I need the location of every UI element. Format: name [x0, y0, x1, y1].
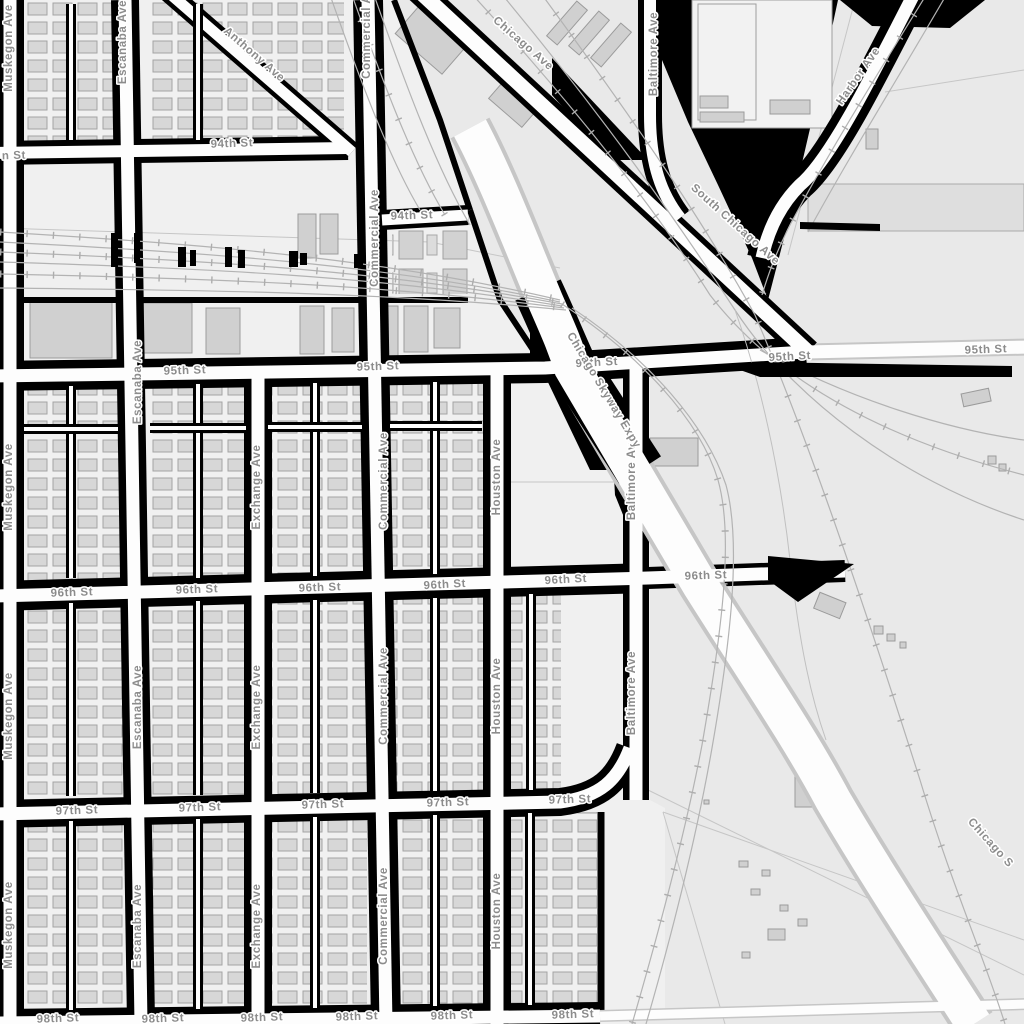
label-98th-st-2: 98th St: [141, 1012, 184, 1024]
label-houston-1: Houston Ave: [491, 439, 503, 516]
label-98th-st-5: 98th St: [430, 1009, 473, 1022]
label-exchange-1: Exchange Ave: [251, 445, 263, 530]
label-muskegon-3: Muskegon Ave: [3, 672, 15, 760]
label-98th-st-1: 98th St: [36, 1012, 79, 1024]
label-partial-st: n St: [2, 150, 27, 163]
label-escanaba-3: Escanaba Ave: [132, 665, 144, 749]
label-houston-3: Houston Ave: [491, 873, 503, 950]
label-commercial-4: Commercial Ave: [378, 647, 390, 745]
label-exchange-2: Exchange Ave: [251, 665, 263, 750]
label-95th-st-4: 95th St: [768, 350, 811, 364]
map-canvas[interactable]: 94th St 94th St n St 95th St 95th St 95t…: [0, 0, 1024, 1024]
label-95th-st-1: 95th St: [163, 364, 206, 377]
label-96th-st-3: 96th St: [298, 581, 341, 594]
label-commercial-1: Commercial Ave: [361, 0, 373, 79]
label-commercial-5: Commercial Ave: [378, 867, 390, 965]
baltimore-top-building: [692, 0, 832, 128]
label-97th-st-4: 97th St: [426, 796, 469, 809]
label-96th-st-2: 96th St: [175, 583, 218, 596]
label-commercial-2: Commercial Ave: [369, 189, 381, 287]
label-98th-st-6: 98th St: [551, 1008, 594, 1021]
label-baltimore-1: Baltimore Ave: [648, 12, 660, 96]
label-98th-st-4: 98th St: [335, 1010, 378, 1023]
label-houston-2: Houston Ave: [491, 658, 503, 735]
label-escanaba-2: Escanaba Ave: [132, 340, 144, 424]
label-96th-st-6: 96th St: [684, 569, 727, 582]
street-map[interactable]: 94th St 94th St n St 95th St 95th St 95t…: [0, 0, 1024, 1024]
label-commercial-3: Commercial Ave: [378, 432, 390, 530]
label-94th-st-2: 94th St: [390, 209, 433, 222]
label-muskegon-2: Muskegon Ave: [3, 443, 15, 531]
label-98th-st-3: 98th St: [240, 1011, 283, 1024]
label-exchange-3: Exchange Ave: [251, 884, 263, 969]
label-96th-st-5: 96th St: [544, 573, 587, 587]
label-95th-st-5: 95th St: [964, 343, 1007, 356]
label-muskegon-1: Muskegon Ave: [3, 4, 15, 92]
label-96th-st-1: 96th St: [50, 586, 93, 599]
label-97th-st-5: 97th St: [548, 793, 591, 806]
label-escanaba-4: Escanaba Ave: [132, 884, 144, 968]
label-95th-st-2: 95th St: [356, 360, 399, 373]
label-97th-st-3: 97th St: [301, 798, 344, 811]
label-97th-st-2: 97th St: [178, 801, 221, 814]
label-muskegon-4: Muskegon Ave: [3, 881, 15, 969]
label-94th-st-1: 94th St: [210, 137, 253, 150]
label-baltimore-3: Baltimore Ave: [626, 651, 638, 735]
label-escanaba-1: Escanaba Ave: [117, 0, 129, 84]
label-97th-st-1: 97th St: [55, 804, 98, 817]
label-96th-st-4: 96th St: [423, 578, 466, 592]
